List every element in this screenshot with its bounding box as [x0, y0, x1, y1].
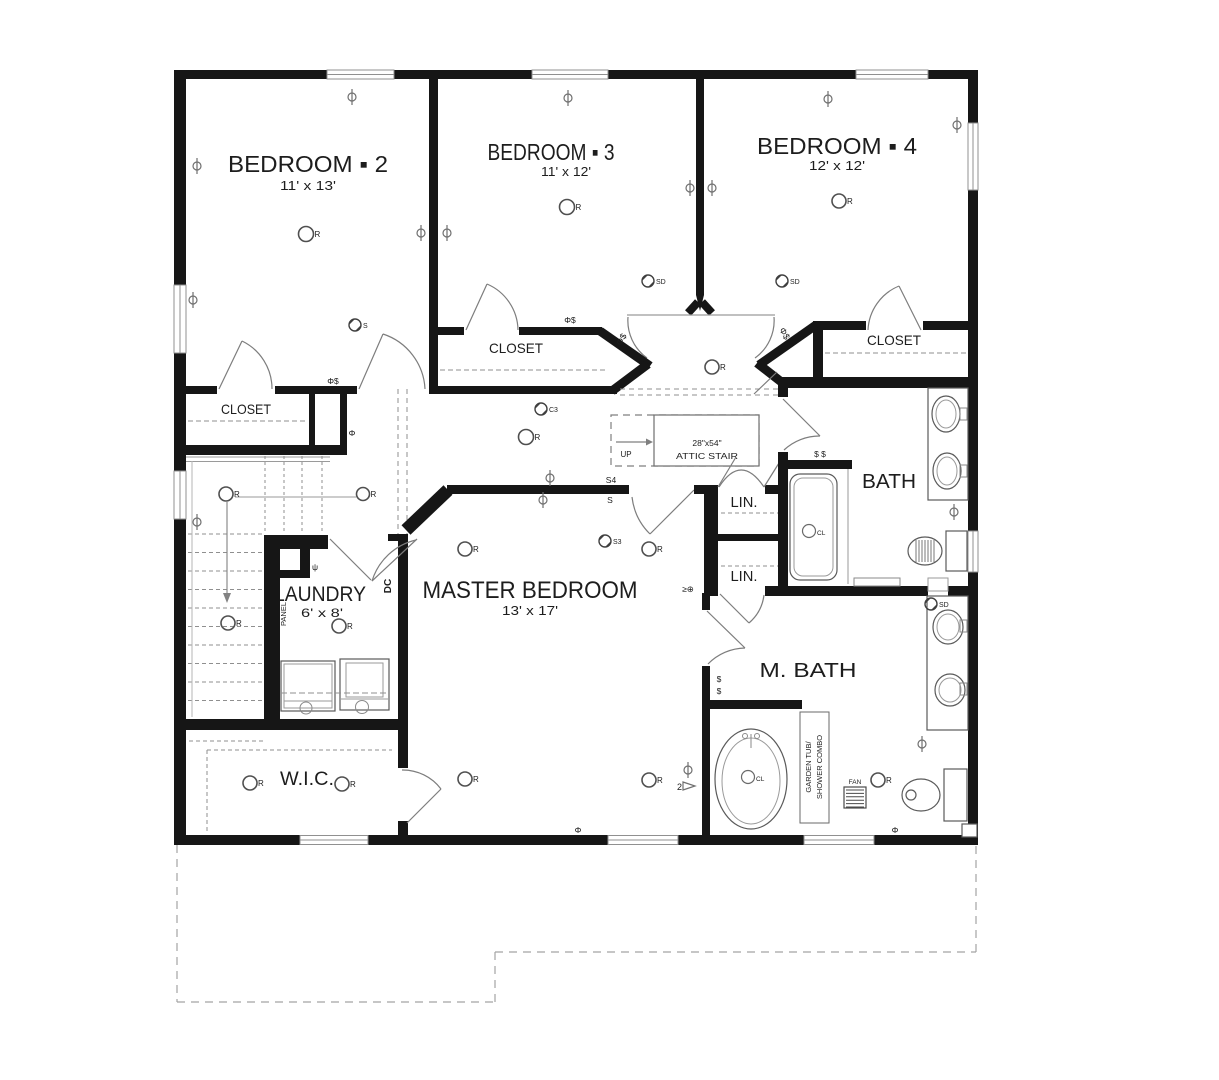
svg-text:CLOSET: CLOSET [867, 332, 921, 348]
svg-text:S4: S4 [606, 475, 617, 485]
svg-text:SD: SD [656, 279, 666, 286]
svg-text:R: R [236, 619, 242, 628]
svg-text:LIN.: LIN. [731, 568, 758, 585]
svg-text:R: R [258, 779, 264, 788]
svg-text:≥⊕: ≥⊕ [682, 584, 694, 594]
svg-text:PANEL: PANEL [279, 602, 288, 626]
svg-text:R: R [473, 775, 479, 784]
svg-text:$ $: $ $ [814, 449, 826, 459]
svg-text:R: R [347, 622, 353, 631]
svg-text:R: R [886, 776, 892, 785]
svg-text:DC: DC [383, 579, 394, 593]
svg-text:6' x 8': 6' x 8' [301, 606, 343, 620]
svg-text:R: R [234, 490, 240, 499]
svg-text:$: $ [717, 674, 722, 684]
svg-text:BEDROOM ▪ 4: BEDROOM ▪ 4 [757, 133, 917, 159]
svg-text:SHOWER COMBO: SHOWER COMBO [815, 735, 824, 799]
svg-text:MASTER BEDROOM: MASTER BEDROOM [423, 577, 638, 604]
svg-text:R: R [720, 363, 726, 372]
svg-text:R: R [657, 545, 663, 554]
svg-text:Φ: Φ [349, 428, 356, 438]
svg-text:BEDROOM ▪ 3: BEDROOM ▪ 3 [488, 139, 615, 165]
svg-text:BEDROOM ▪ 2: BEDROOM ▪ 2 [228, 151, 388, 177]
svg-text:LIN.: LIN. [731, 494, 758, 511]
svg-text:W.I.C.: W.I.C. [280, 769, 334, 790]
svg-text:12' x 12': 12' x 12' [809, 158, 865, 173]
svg-text:R: R [371, 490, 377, 499]
svg-text:11' x 12': 11' x 12' [541, 164, 591, 179]
svg-text:UP: UP [620, 450, 631, 459]
svg-text:Φ$: Φ$ [327, 376, 339, 386]
svg-text:R: R [576, 203, 582, 212]
svg-text:C3: C3 [549, 407, 558, 414]
svg-text:Φ$: Φ$ [564, 315, 576, 325]
svg-text:2: 2 [677, 782, 682, 792]
svg-text:ATTIC STAIR: ATTIC STAIR [676, 451, 738, 461]
svg-text:R: R [657, 776, 663, 785]
svg-text:28"x54": 28"x54" [692, 438, 721, 448]
svg-text:R: R [847, 197, 853, 206]
svg-text:S: S [607, 495, 613, 505]
svg-text:ψ: ψ [312, 562, 318, 572]
svg-text:11' x 13': 11' x 13' [280, 178, 336, 193]
svg-text:Φ: Φ [575, 825, 582, 835]
svg-text:M. BATH: M. BATH [760, 660, 857, 682]
svg-text:GARDEN TUB/: GARDEN TUB/ [804, 741, 813, 793]
svg-text:FAN: FAN [849, 779, 862, 786]
svg-text:CL: CL [756, 776, 765, 783]
svg-text:R: R [473, 545, 479, 554]
svg-text:Φ: Φ [892, 825, 899, 835]
svg-text:13' x 17': 13' x 17' [502, 603, 558, 618]
svg-text:S: S [363, 323, 368, 330]
svg-text:R: R [535, 433, 541, 442]
svg-text:SD: SD [939, 602, 949, 609]
svg-text:CLOSET: CLOSET [489, 340, 543, 356]
svg-text:R: R [350, 780, 356, 789]
svg-text:CLOSET: CLOSET [221, 401, 271, 417]
svg-text:BATH: BATH [862, 471, 916, 493]
svg-text:R: R [315, 230, 321, 239]
svg-text:S3: S3 [613, 539, 622, 546]
svg-text:CL: CL [817, 530, 826, 537]
svg-text:$: $ [717, 686, 722, 696]
svg-text:SD: SD [790, 279, 800, 286]
